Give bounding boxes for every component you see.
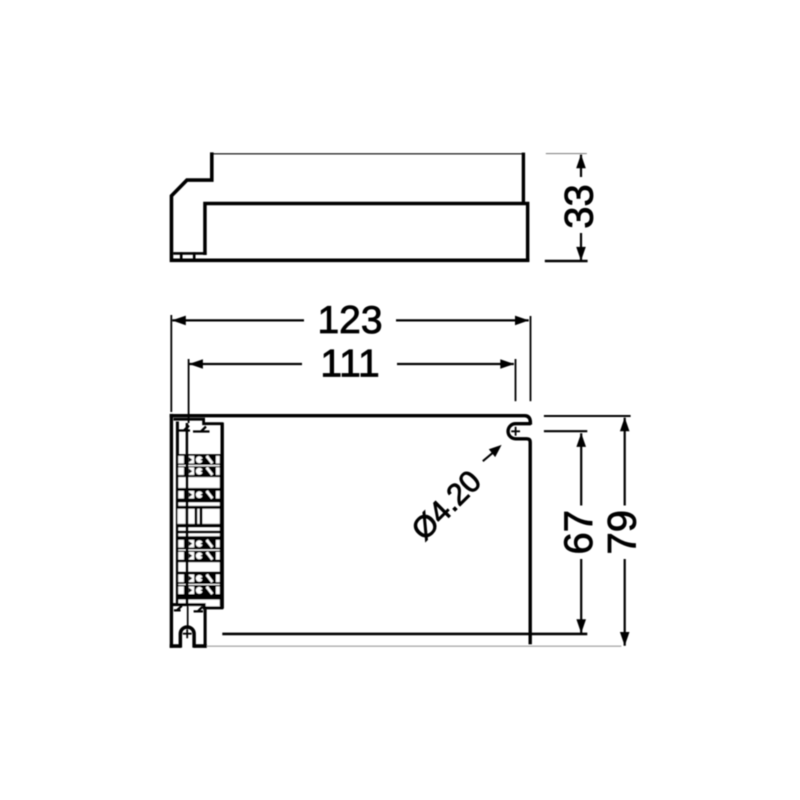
svg-text:123: 123 [317, 299, 382, 342]
svg-text:33: 33 [558, 184, 602, 229]
svg-text:67: 67 [557, 510, 601, 555]
svg-text:79: 79 [600, 510, 644, 555]
svg-text:111: 111 [320, 343, 379, 386]
